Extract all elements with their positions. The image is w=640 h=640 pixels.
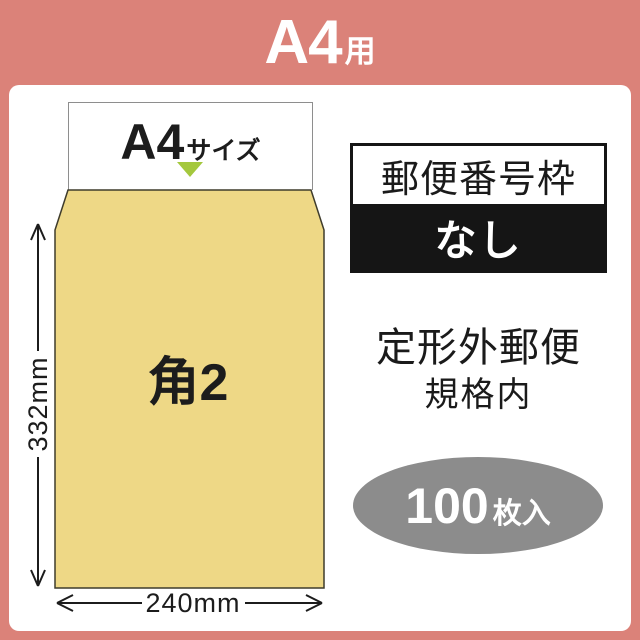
- content-panel: A4 サイズ 角2 332mm 240mm 郵便番号枠 なし 定形外郵便 規格内: [9, 85, 631, 631]
- banner-title-suffix: 用: [345, 36, 376, 67]
- banner: A4 用: [0, 0, 640, 85]
- envelope-size-label: 角2: [108, 357, 268, 409]
- banner-title: A4: [264, 12, 341, 74]
- height-label: 332mm: [23, 344, 53, 464]
- envelope-diagram: [9, 85, 631, 631]
- width-label: 240mm: [133, 588, 253, 618]
